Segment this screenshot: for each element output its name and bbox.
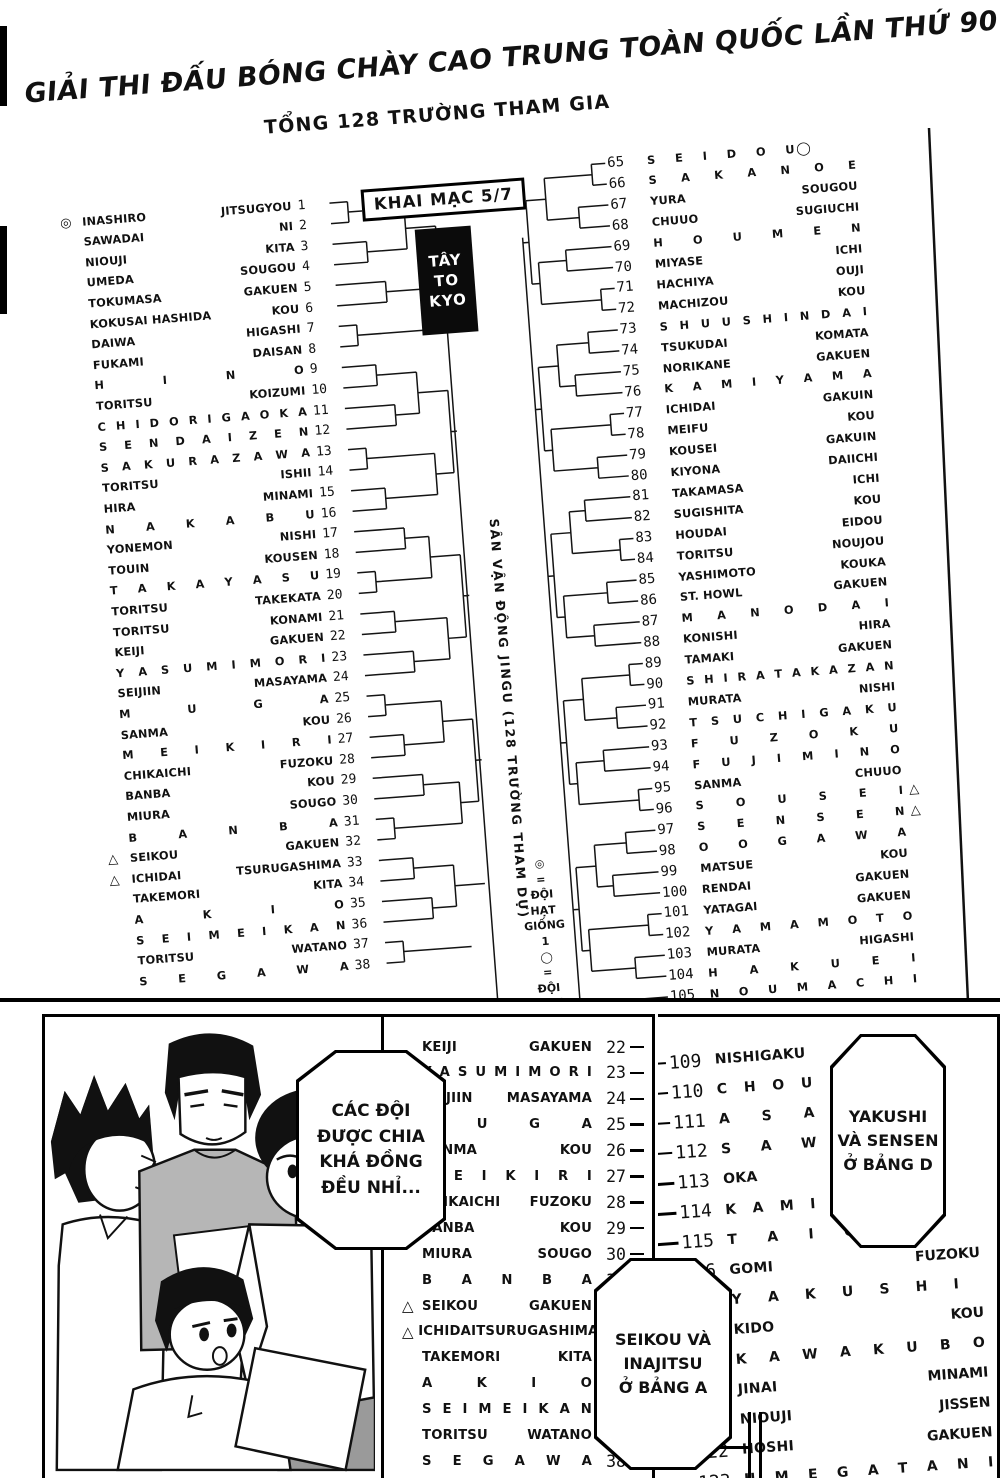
speech-bubble-seikou: SEIKOU VÀINAJITSUỞ BẢNG A [594, 1258, 732, 1470]
team-name: BANBAKOU [422, 1221, 592, 1236]
team-name: MIURASOUGO [422, 1247, 592, 1262]
speech-bubble-teams-even: CÁC ĐỘIĐƯỢC CHIAKHÁ ĐỒNGĐỀU NHỈ... [296, 1050, 446, 1250]
team-name-right: GAKUEN [927, 1424, 1000, 1445]
team-number: 30 [592, 1245, 626, 1264]
detail-team-row: KEIJIGAKUEN22 [402, 1035, 644, 1059]
team-name: NISHIGAKU [714, 1045, 806, 1067]
detail-team-row: MIURASOUGO30 [402, 1242, 644, 1266]
team-number: 28 [592, 1193, 626, 1212]
team-name: M E I K I R I [422, 1169, 592, 1184]
team-name: CHIKAICHIFUZOKU [422, 1195, 592, 1210]
manga-page: GIẢI THI ĐẤU BÓNG CHÀY CAO TRUNG TOÀN QU… [0, 0, 1000, 1478]
team-name: S A W [721, 1135, 818, 1158]
team-number: 25 [592, 1115, 626, 1134]
team-number: 26 [592, 1141, 626, 1160]
connector-stub [658, 1062, 666, 1066]
team-name: A S A [718, 1105, 815, 1128]
team-name-right: KOU [950, 1304, 991, 1323]
team-number: 112 [674, 1139, 721, 1163]
team-name: TAKEMORIKITA [422, 1350, 592, 1365]
team-number: 111 [672, 1109, 719, 1133]
team-number: 27 [592, 1167, 626, 1186]
speech-text: YAKUSHIVÀ SENSENỞ BẢNG D [838, 1105, 939, 1177]
team-name: SEIKOUGAKUEN [422, 1299, 592, 1314]
team-number: 114 [679, 1199, 726, 1223]
bracket-join-line [748, 1412, 751, 1478]
speech-text: CÁC ĐỘIĐƯỢC CHIAKHÁ ĐỒNGĐỀU NHỈ... [317, 1099, 425, 1201]
team-name: TORITSUWATANO [422, 1428, 592, 1443]
speech-text: SEIKOU VÀINAJITSUỞ BẢNG A [615, 1328, 711, 1400]
team-number: 115 [681, 1229, 728, 1253]
panel-divider [0, 998, 1000, 1002]
scan-edge-mark [0, 26, 7, 106]
team-name: OKA [723, 1169, 759, 1187]
detail-team-row: S E G A W A38 [402, 1449, 644, 1473]
scan-edge-mark [0, 226, 7, 314]
team-name-right: MINAMI [927, 1364, 995, 1385]
team-name: B A N B A [422, 1273, 592, 1288]
team-number: 29 [592, 1219, 626, 1238]
connector-stub [658, 1182, 674, 1186]
team-name-right: FUZOKU [915, 1244, 987, 1265]
page-edge-line [0, 0, 1000, 1002]
team-name: S E I M E I K A N [422, 1402, 592, 1417]
team-name: JINAI [737, 1379, 778, 1398]
team-name: SEIJIINMASAYAMA [422, 1091, 592, 1106]
team-name: A K I O [422, 1376, 592, 1391]
team-name: GOMI [729, 1259, 774, 1278]
team-number: 24 [592, 1089, 626, 1108]
team-number: 123 [698, 1470, 745, 1478]
team-name: K A M I K [725, 1194, 844, 1218]
team-name: KEIJIGAKUEN [422, 1040, 592, 1055]
connector-stub [658, 1152, 672, 1156]
bracket-section: GIẢI THI ĐẤU BÓNG CHÀY CAO TRUNG TOÀN QU… [0, 0, 1000, 1002]
speech-bubble-yakushi: YAKUSHIVÀ SENSENỞ BẢNG D [830, 1034, 946, 1248]
connector-stub [658, 1122, 670, 1126]
team-number: 23 [592, 1063, 626, 1082]
seed-marker: △ [402, 1297, 422, 1315]
seed-marker: △ [402, 1323, 418, 1341]
team-name: M U G A [422, 1117, 592, 1132]
connector-stub [658, 1242, 679, 1246]
team-name: Y A S U M I M O R I [422, 1065, 592, 1080]
team-name: C H O U [716, 1075, 813, 1098]
team-name: ICHIDAITSURUGASHIMA [418, 1324, 598, 1339]
team-number: 22 [592, 1038, 626, 1057]
connector-stub [658, 1212, 677, 1216]
team-number: 109 [668, 1049, 715, 1073]
team-number: 110 [670, 1079, 717, 1103]
team-number: 113 [677, 1169, 724, 1193]
team-name: KIDO [733, 1319, 775, 1338]
bracket-join-line [759, 1412, 762, 1478]
connector-stub [658, 1092, 668, 1096]
team-name: S E G A W A [422, 1454, 592, 1469]
team-name-right: JISSEN [939, 1394, 997, 1414]
team-name: SANMAKOU [422, 1143, 592, 1158]
